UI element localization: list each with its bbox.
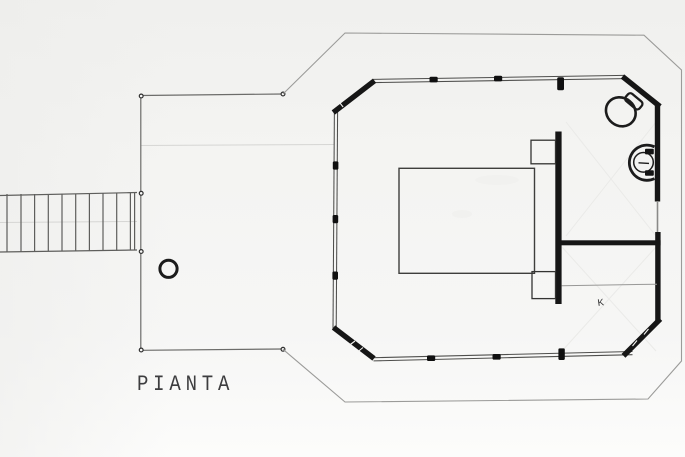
svg-text:PIANTA: PIANTA <box>137 373 234 398</box>
